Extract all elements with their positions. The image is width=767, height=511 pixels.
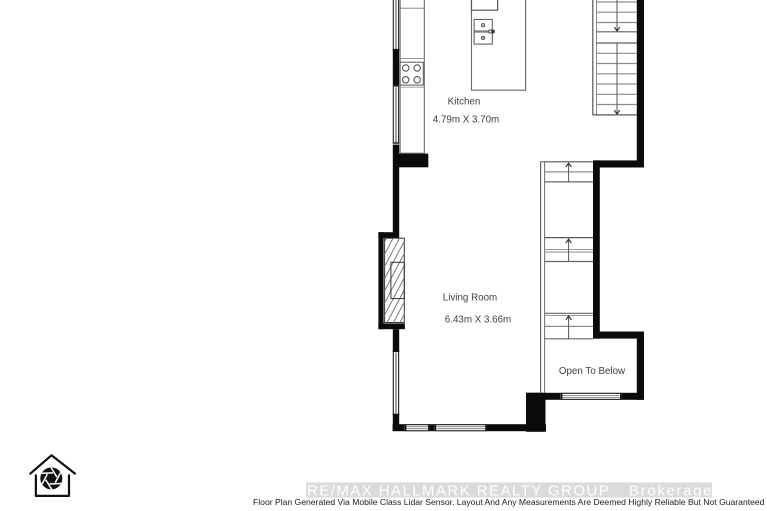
svg-text:Living Room: Living Room	[443, 292, 497, 303]
svg-text:4.79m X 3.70m: 4.79m X 3.70m	[433, 115, 499, 126]
svg-text:Kitchen: Kitchen	[448, 96, 481, 107]
svg-text:Open To Below: Open To Below	[559, 366, 626, 377]
svg-text:Floor Plan Generated Via Mobil: Floor Plan Generated Via Mobile Class Li…	[253, 497, 765, 507]
svg-text:6.43m X 3.66m: 6.43m X 3.66m	[445, 315, 511, 326]
